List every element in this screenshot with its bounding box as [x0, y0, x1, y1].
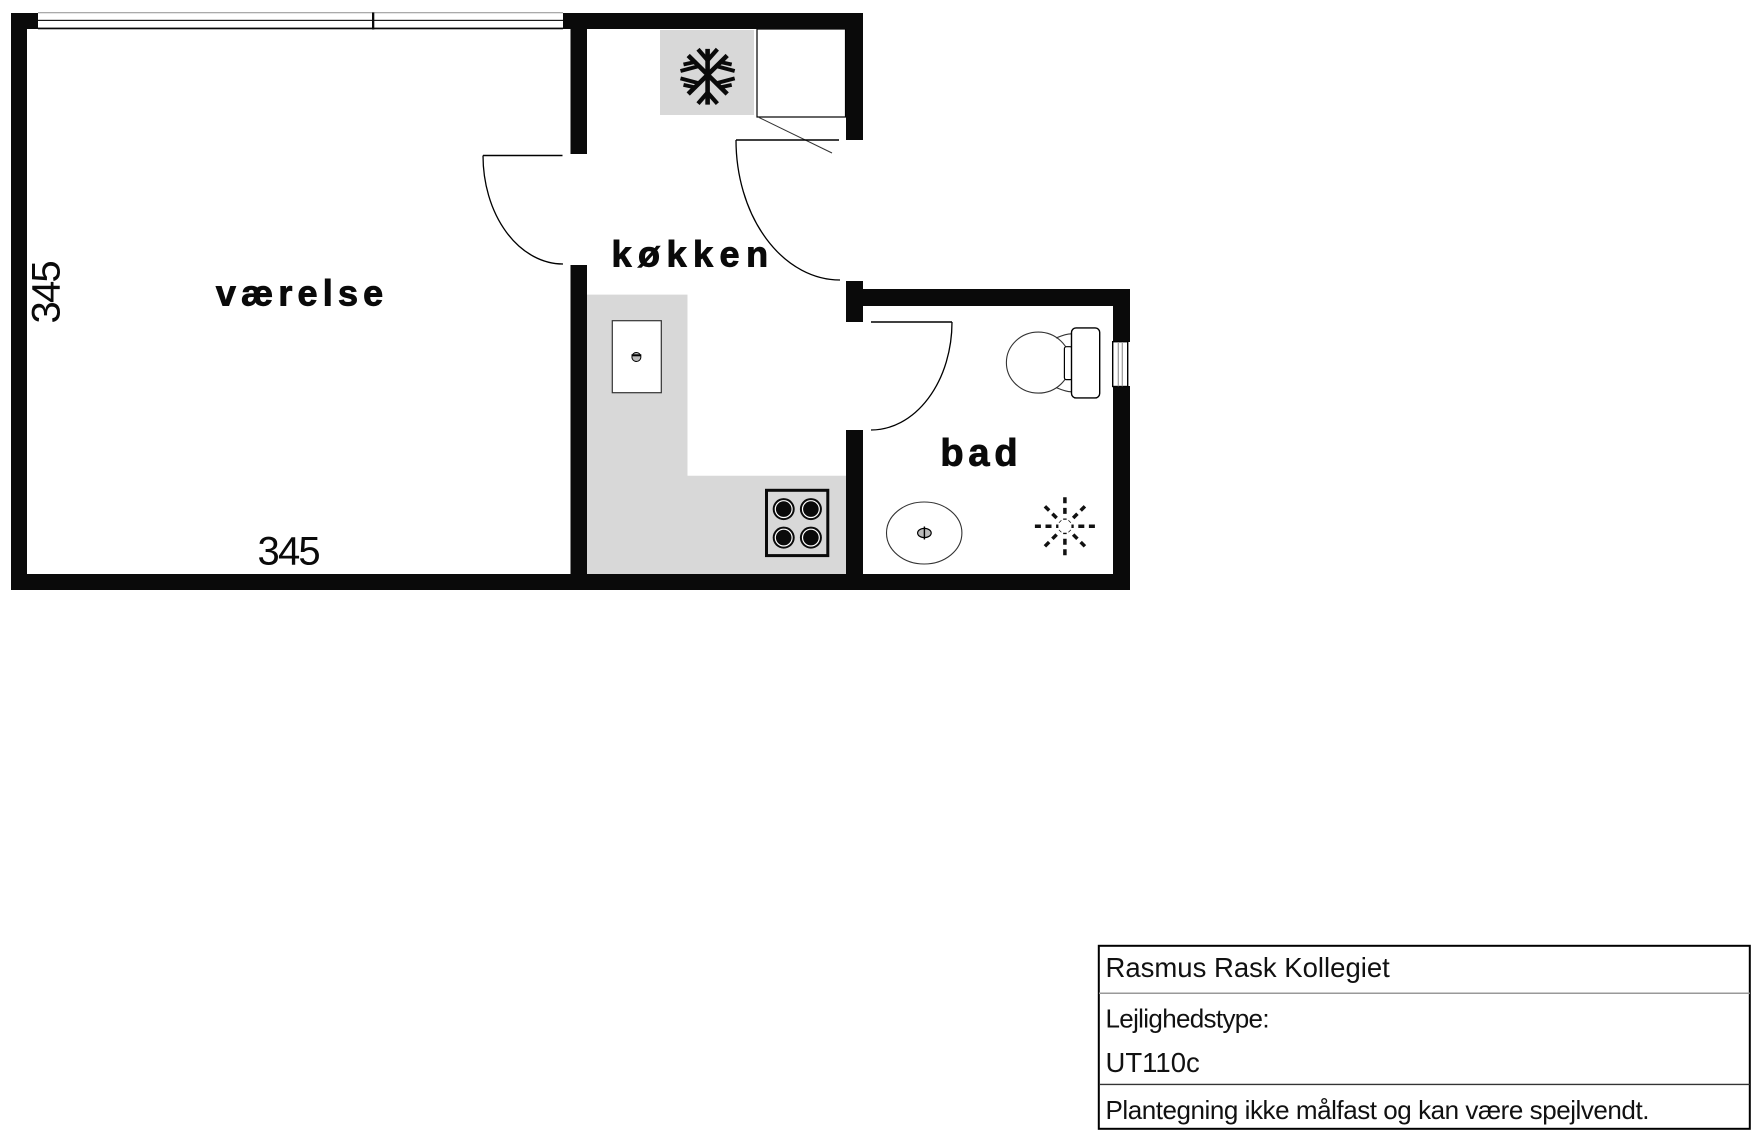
svg-text:bad: bad: [940, 432, 1022, 474]
svg-text:UT110c: UT110c: [1106, 1047, 1200, 1078]
svg-text:345: 345: [25, 262, 69, 324]
svg-text:345: 345: [258, 529, 320, 573]
svg-text:Lejlighedstype:: Lejlighedstype:: [1106, 1004, 1269, 1034]
svg-text:værelse: værelse: [216, 273, 389, 314]
svg-text:Rasmus Rask Kollegiet: Rasmus Rask Kollegiet: [1106, 952, 1391, 983]
svg-text:køkken: køkken: [612, 234, 775, 275]
svg-text:Plantegning ikke målfast og ka: Plantegning ikke målfast og kan være spe…: [1106, 1095, 1650, 1125]
